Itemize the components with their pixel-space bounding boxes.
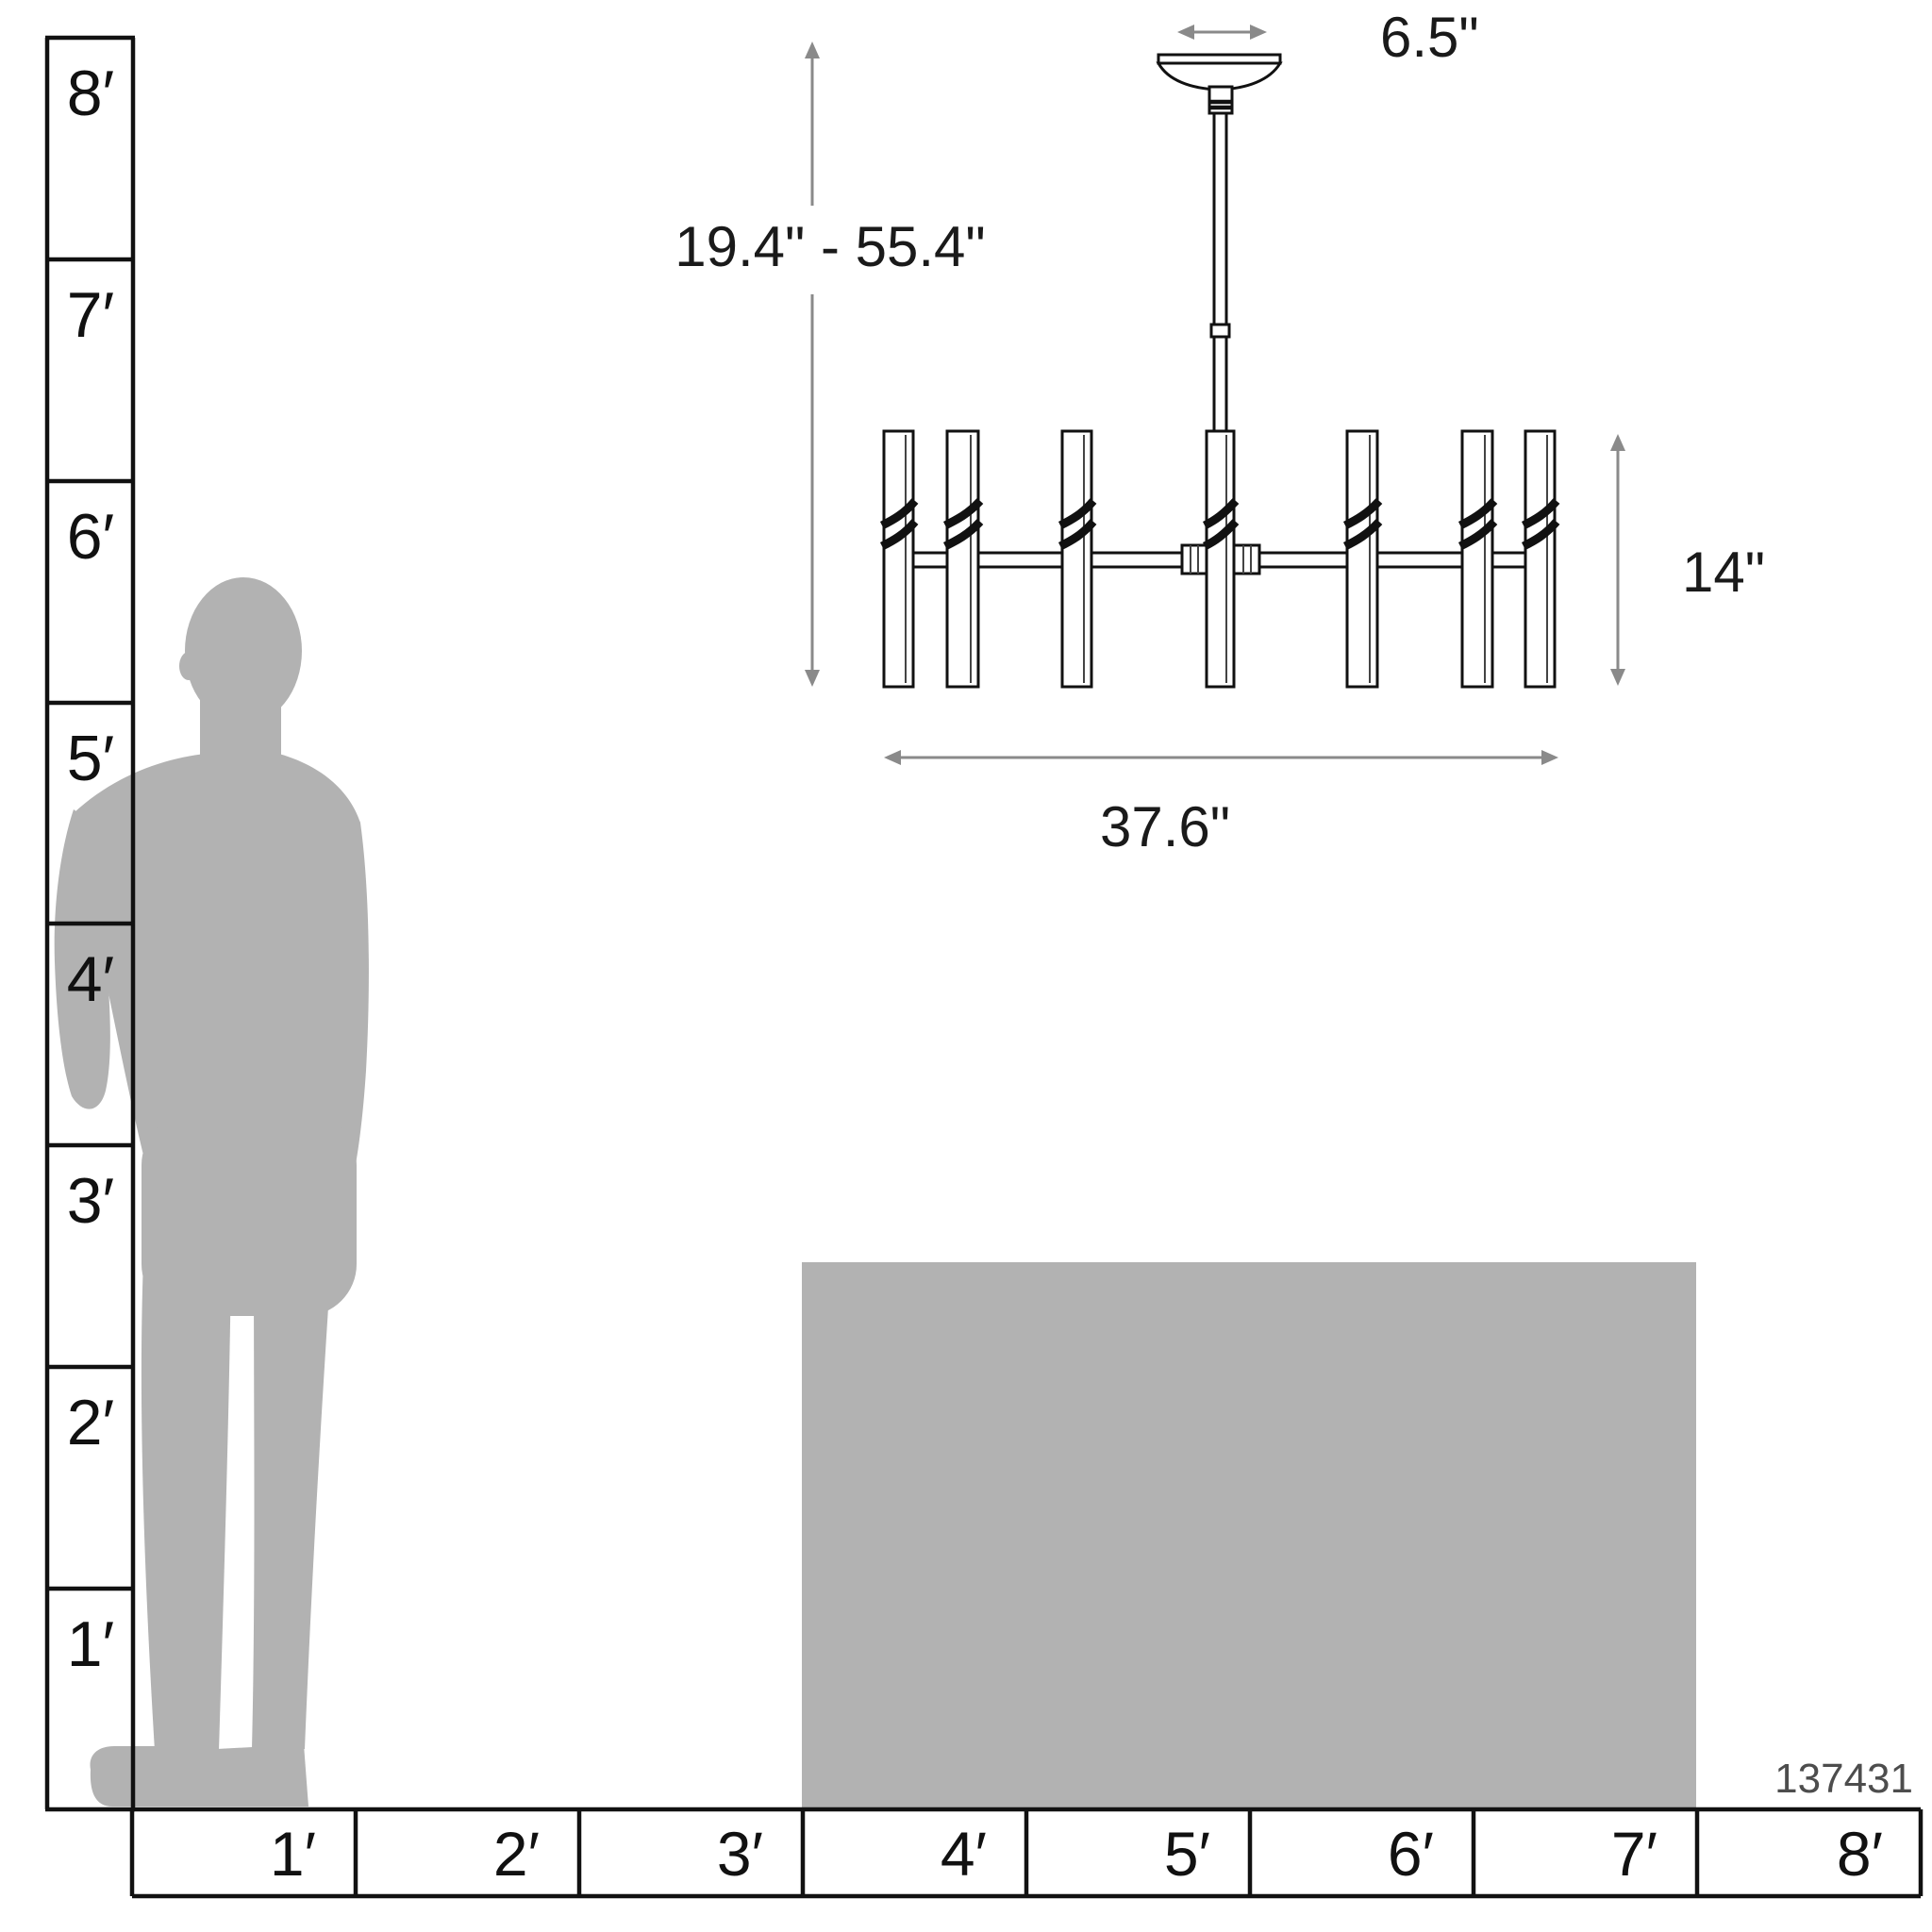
chandelier-center-column bbox=[1205, 431, 1236, 687]
fixture-width-label: 37.6" bbox=[1100, 795, 1230, 858]
hruler-label-8ft: 8′ bbox=[1837, 1819, 1883, 1889]
chandelier-arm-bar-2 bbox=[945, 431, 980, 687]
person-front-leg bbox=[142, 1259, 231, 1751]
diagram-canvas: 8′ 7′ 6′ 5′ 4′ 3′ 2′ 1′ 1′ 2′ 3′ 4′ 5′ 6… bbox=[0, 0, 1932, 1932]
chandelier-arm-bar-6 bbox=[1460, 431, 1494, 687]
hruler-label-1ft: 1′ bbox=[270, 1819, 316, 1889]
canopy-width-arrowhead-right bbox=[1250, 25, 1267, 40]
hang-height-arrowhead-top bbox=[805, 42, 820, 58]
hruler-label-4ft: 4′ bbox=[941, 1819, 987, 1889]
hruler-label-2ft: 2′ bbox=[493, 1819, 540, 1889]
canopy-width-label: 6.5" bbox=[1380, 6, 1479, 69]
person-back-shoe bbox=[142, 1744, 308, 1807]
hang-height-label: 19.4" - 55.4" bbox=[675, 215, 985, 278]
hruler-label-5ft: 5′ bbox=[1164, 1819, 1210, 1889]
product-number: 137431 bbox=[1774, 1756, 1913, 1802]
table-block bbox=[802, 1262, 1696, 1809]
fixture-height-label: 14" bbox=[1682, 541, 1765, 604]
vertical-ruler: 8′ 7′ 6′ 5′ 4′ 3′ 2′ 1′ bbox=[45, 38, 135, 1809]
vruler-label-7ft: 7′ bbox=[67, 279, 115, 351]
chandelier-arm-bar-3 bbox=[1060, 431, 1093, 687]
person-back-leg bbox=[252, 1264, 331, 1749]
vruler-label-3ft: 3′ bbox=[67, 1165, 115, 1237]
vruler-label-4ft: 4′ bbox=[67, 943, 115, 1015]
horizontal-ruler: 1′ 2′ 3′ 4′ 5′ 6′ 7′ 8′ bbox=[132, 1809, 1921, 1896]
vruler-label-2ft: 2′ bbox=[67, 1387, 115, 1458]
vruler-label-6ft: 6′ bbox=[67, 501, 115, 573]
chandelier-arm-bar-5 bbox=[1345, 431, 1379, 687]
fixture-height-arrowhead-top bbox=[1610, 434, 1625, 451]
fixture-width-arrowhead-right bbox=[1541, 750, 1558, 765]
chandelier-downrod bbox=[1214, 113, 1226, 431]
hruler-label-7ft: 7′ bbox=[1611, 1819, 1657, 1889]
hruler-label-3ft: 3′ bbox=[717, 1819, 763, 1889]
chandelier-rod-coupler bbox=[1211, 325, 1229, 337]
hang-height-arrowhead-bottom bbox=[805, 670, 820, 687]
chandelier-arm-bar-7 bbox=[1524, 431, 1557, 687]
vruler-label-1ft: 1′ bbox=[67, 1608, 115, 1680]
fixture-width-arrowhead-left bbox=[884, 750, 901, 765]
vruler-label-5ft: 5′ bbox=[67, 723, 115, 794]
vruler-label-8ft: 8′ bbox=[67, 58, 115, 129]
fixture-height-arrowhead-bottom bbox=[1610, 669, 1625, 686]
chandelier-arm-bar-1 bbox=[882, 431, 915, 687]
person-nose bbox=[179, 652, 198, 680]
chandelier-drawing bbox=[882, 55, 1557, 687]
hruler-label-6ft: 6′ bbox=[1388, 1819, 1434, 1889]
dimension-diagram: 8′ 7′ 6′ 5′ 4′ 3′ 2′ 1′ 1′ 2′ 3′ 4′ 5′ 6… bbox=[0, 0, 1932, 1932]
canopy-width-arrowhead-left bbox=[1177, 25, 1194, 40]
